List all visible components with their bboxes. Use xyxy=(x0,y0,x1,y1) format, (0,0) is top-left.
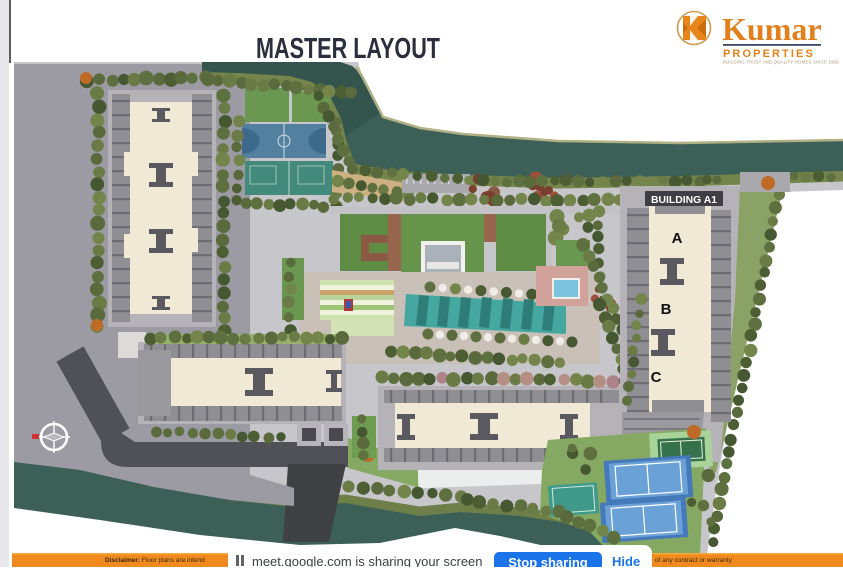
svg-text:Kumar: Kumar xyxy=(722,11,822,47)
svg-text:C: C xyxy=(651,369,662,386)
svg-text:Hide: Hide xyxy=(612,554,640,567)
svg-text:Disclaimer: Floor plans are in: Disclaimer: Floor plans are intend xyxy=(105,557,205,564)
svg-text:meet.google.com is sharing you: meet.google.com is sharing your screen xyxy=(252,554,483,567)
svg-text:A: A xyxy=(672,230,683,247)
svg-text:Stop sharing: Stop sharing xyxy=(508,555,588,567)
svg-text:MASTER LAYOUT: MASTER LAYOUT xyxy=(256,33,440,65)
svg-text:BUILDING A1: BUILDING A1 xyxy=(651,195,717,206)
svg-text:of any contract or warranty: of any contract or warranty xyxy=(655,557,733,564)
svg-text:B: B xyxy=(661,301,672,318)
svg-text:BUILDING TRUST AND QUALITY HOM: BUILDING TRUST AND QUALITY HOMES SINCE 1… xyxy=(723,60,839,65)
svg-text:PROPERTIES: PROPERTIES xyxy=(723,48,815,60)
